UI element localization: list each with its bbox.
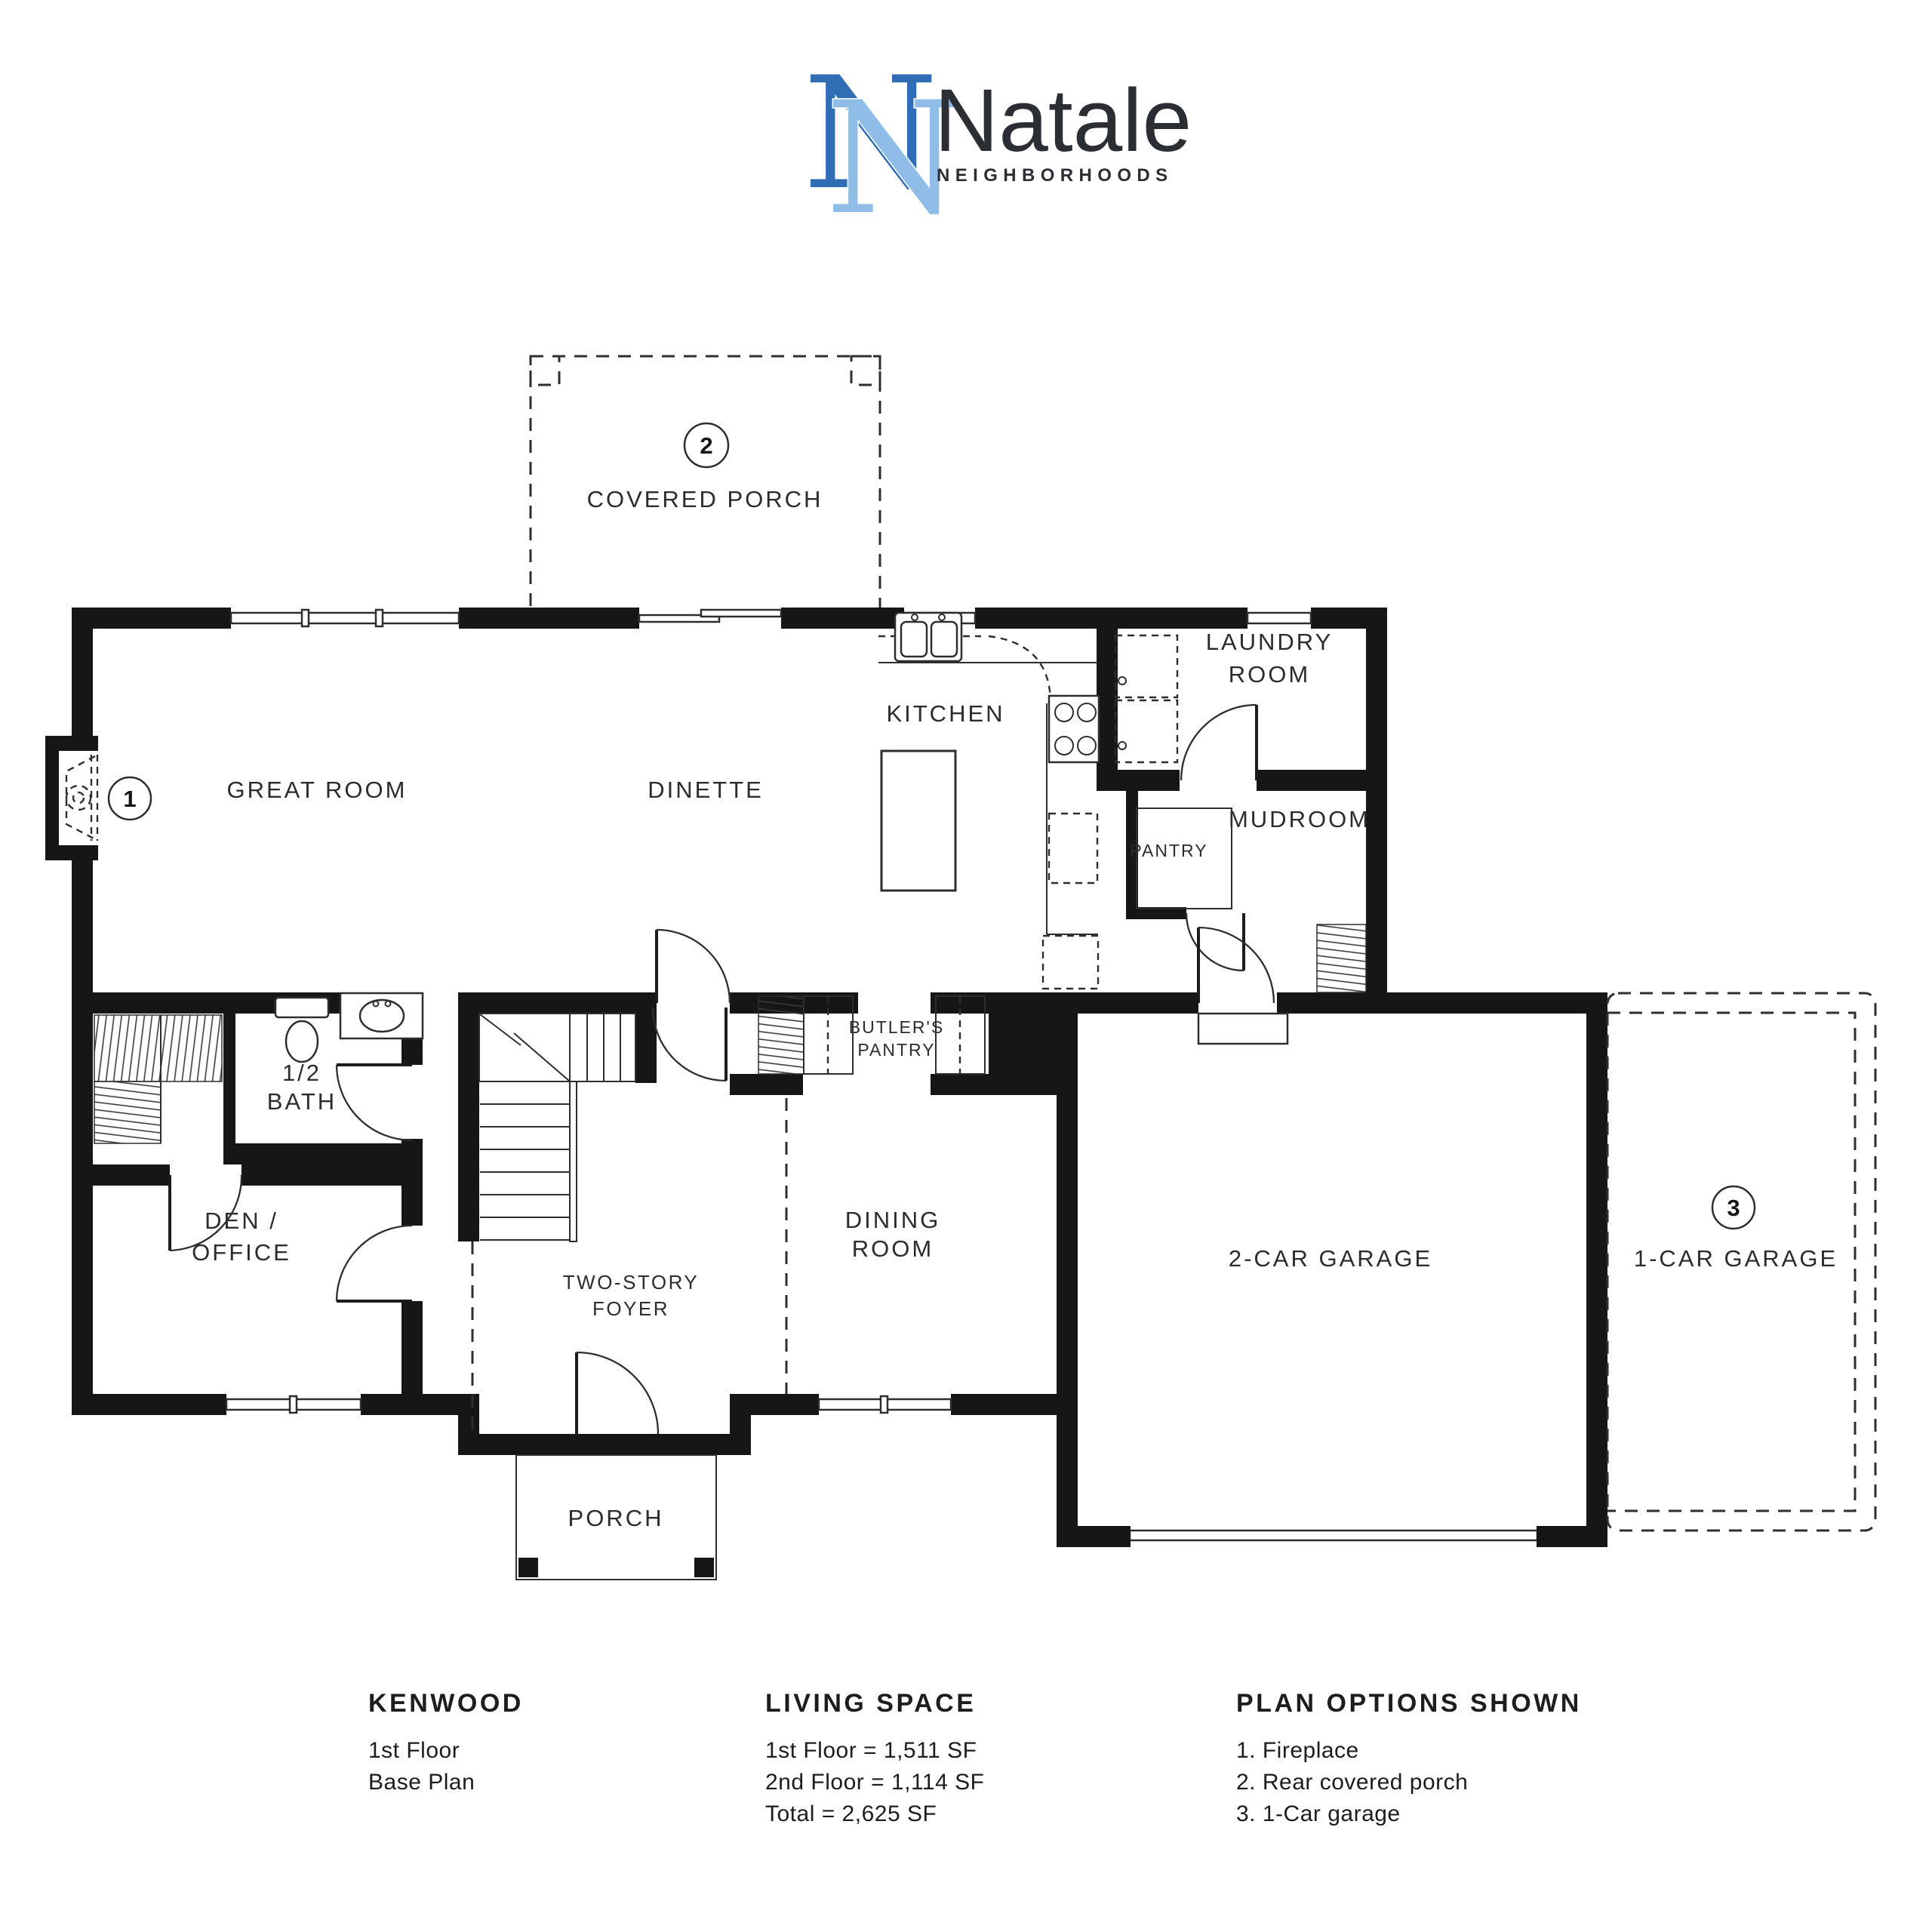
- kitchen-sink: [895, 613, 961, 661]
- fireplace: 1: [45, 736, 151, 860]
- toilet-bowl: [286, 1021, 318, 1062]
- floor-plan-canvas: N N Natale NEIGHBORHOODS 2 COVERED PORCH: [0, 0, 1932, 1932]
- half-bath-fixtures: [275, 993, 423, 1062]
- dryer: [1115, 700, 1177, 762]
- coat-closet-hatch: [1317, 924, 1366, 992]
- butlers-closet-hatch: [758, 996, 804, 1074]
- room-label-den-line1: DEN /: [205, 1207, 278, 1234]
- washer: [1115, 635, 1177, 697]
- option-marker-1-number: 1: [123, 786, 136, 812]
- room-label-dinette: DINETTE: [648, 777, 764, 803]
- legend-plan-name-line1: 1st Floor: [368, 1738, 460, 1763]
- legend-plan-options-line1: 1. Fireplace: [1236, 1738, 1359, 1763]
- garage-door: [1130, 1531, 1537, 1540]
- bath-sink: [360, 1000, 404, 1032]
- legend-living-space-line1: 1st Floor = 1,511 SF: [765, 1738, 977, 1763]
- room-label-half-bath-line1: 1/2: [282, 1060, 321, 1086]
- room-label-kitchen: KITCHEN: [886, 700, 1004, 727]
- legend-living-space-title: LIVING SPACE: [765, 1689, 976, 1718]
- great-room-window: [231, 613, 459, 623]
- brand-tagline: NEIGHBORHOODS: [937, 165, 1174, 186]
- kitchen-island: [881, 751, 955, 891]
- brand-logo: N N Natale NEIGHBORHOODS: [803, 45, 1192, 249]
- legend-plan-name: KENWOOD 1st Floor Base Plan: [368, 1689, 524, 1795]
- room-label-den-line2: OFFICE: [192, 1239, 291, 1266]
- room-label-great-room: GREAT ROOM: [227, 777, 408, 803]
- room-label-two-car-garage: 2-CAR GARAGE: [1229, 1245, 1432, 1272]
- garage-step: [1198, 1014, 1287, 1044]
- laundry-fixtures: [1115, 635, 1177, 762]
- room-label-laundry-line2: ROOM: [1229, 661, 1310, 688]
- room-label-half-bath-line2: BATH: [267, 1088, 337, 1115]
- range-stove: [1049, 696, 1099, 762]
- porch-column-right: [694, 1558, 714, 1577]
- room-label-pantry: PANTRY: [1130, 841, 1207, 860]
- room-label-mudroom: MUDROOM: [1229, 806, 1371, 832]
- room-label-dining-line2: ROOM: [852, 1235, 934, 1262]
- room-label-dining-line1: DINING: [845, 1207, 941, 1233]
- room-label-one-car-garage: 1-CAR GARAGE: [1634, 1245, 1838, 1272]
- laundry-window: [1247, 613, 1311, 623]
- legend: KENWOOD 1st Floor Base Plan LIVING SPACE…: [368, 1689, 1582, 1826]
- legend-plan-name-line2: Base Plan: [368, 1770, 475, 1795]
- refrigerator: [1043, 936, 1098, 989]
- porch-column-left: [518, 1558, 538, 1577]
- legend-plan-name-title: KENWOOD: [368, 1689, 524, 1718]
- floor-plan-sheet: N N Natale NEIGHBORHOODS 2 COVERED PORCH: [0, 0, 1932, 1932]
- room-label-butlers-line2: PANTRY: [857, 1040, 935, 1060]
- stair-rail: [570, 1081, 577, 1241]
- room-label-covered-porch: COVERED PORCH: [587, 486, 823, 512]
- stair-landing: [570, 1014, 635, 1081]
- stair-treads: [480, 1081, 570, 1240]
- room-label-porch: PORCH: [568, 1505, 664, 1531]
- legend-plan-options-line3: 3. 1-Car garage: [1236, 1801, 1401, 1826]
- legend-plan-options-title: PLAN OPTIONS SHOWN: [1236, 1689, 1582, 1718]
- dishwasher: [1049, 814, 1097, 883]
- brand-name: Natale: [934, 71, 1192, 171]
- legend-living-space-line3: Total = 2,625 SF: [765, 1801, 937, 1826]
- covered-porch-outline: 2 COVERED PORCH: [531, 356, 880, 624]
- legend-living-space-line2: 2nd Floor = 1,114 SF: [765, 1770, 984, 1795]
- doors: [170, 705, 1287, 1434]
- room-label-foyer-line2: FOYER: [592, 1297, 669, 1320]
- legend-plan-options: PLAN OPTIONS SHOWN 1. Fireplace 2. Rear …: [1236, 1689, 1582, 1826]
- option-marker-3-number: 3: [1727, 1195, 1740, 1221]
- room-label-foyer-line1: TWO-STORY: [563, 1271, 699, 1294]
- room-label-laundry-line1: LAUNDRY: [1206, 629, 1334, 655]
- legend-plan-options-line2: 2. Rear covered porch: [1236, 1770, 1468, 1795]
- option-marker-2-number: 2: [700, 432, 712, 459]
- toilet-tank: [275, 998, 328, 1017]
- kitchen-fixtures: [878, 613, 1099, 989]
- legend-living-space: LIVING SPACE 1st Floor = 1,511 SF 2nd Fl…: [765, 1689, 984, 1826]
- hall-closet-hatch: [94, 1015, 222, 1081]
- room-label-butlers-line1: BUTLER'S: [849, 1017, 944, 1037]
